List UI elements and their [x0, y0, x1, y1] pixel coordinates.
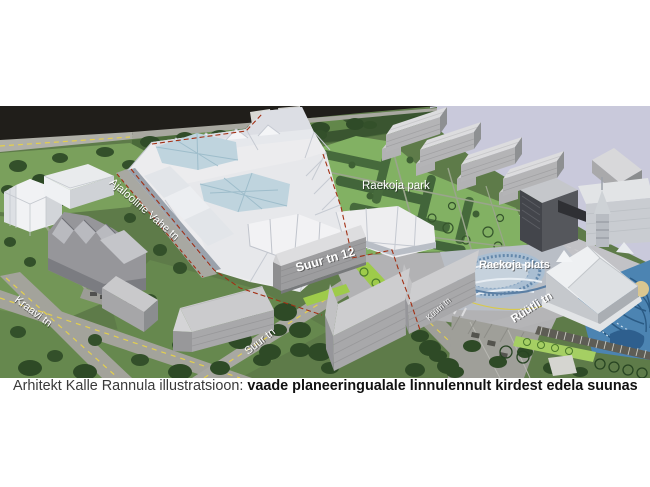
svg-text:Raekoja plats: Raekoja plats: [479, 259, 550, 271]
svg-text:Raekoja park: Raekoja park: [362, 180, 430, 192]
